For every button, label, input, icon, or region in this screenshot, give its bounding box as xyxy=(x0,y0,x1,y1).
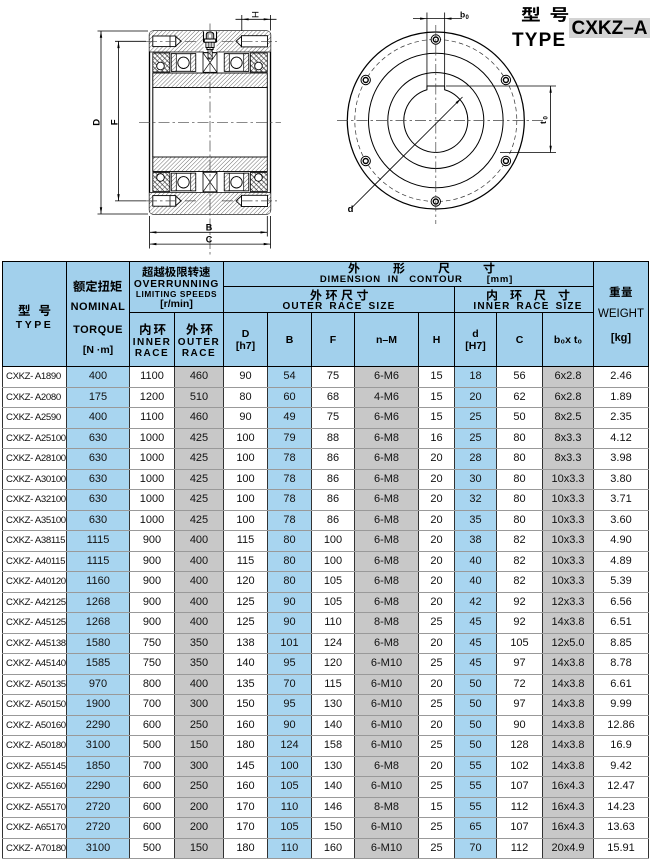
svg-text:C: C xyxy=(206,235,213,245)
svg-text:0: 0 xyxy=(544,116,550,120)
svg-text:H: H xyxy=(251,11,262,18)
svg-text:D: D xyxy=(92,119,103,126)
svg-text:F: F xyxy=(110,119,121,125)
svg-text:B: B xyxy=(206,223,213,233)
svg-text:d: d xyxy=(348,204,354,215)
svg-text:0: 0 xyxy=(466,15,470,21)
svg-text:b: b xyxy=(460,10,465,20)
svg-text:t: t xyxy=(538,121,548,124)
